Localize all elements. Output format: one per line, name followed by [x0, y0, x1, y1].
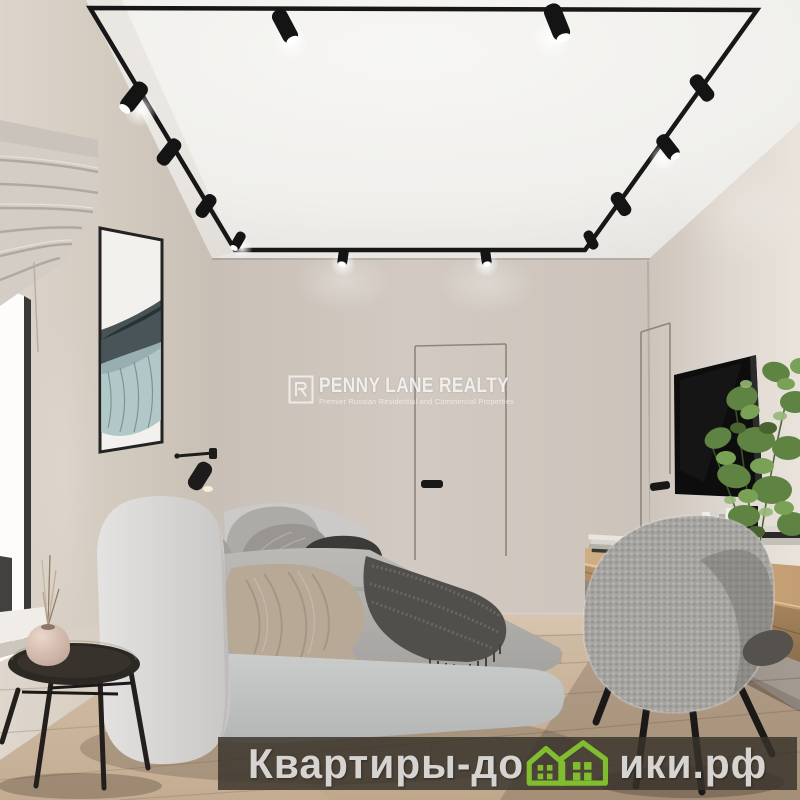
chair-shadow — [595, 766, 785, 798]
headboard-side — [97, 496, 230, 764]
artwork — [100, 228, 162, 452]
window-frame — [24, 296, 31, 650]
bedroom-scene — [0, 0, 800, 800]
lamp-light — [203, 486, 213, 492]
door-handle — [421, 480, 443, 488]
bedroom-photo: PENNY LANE REALTY Premier Russian Reside… — [0, 0, 800, 800]
table-shadow — [0, 773, 162, 799]
